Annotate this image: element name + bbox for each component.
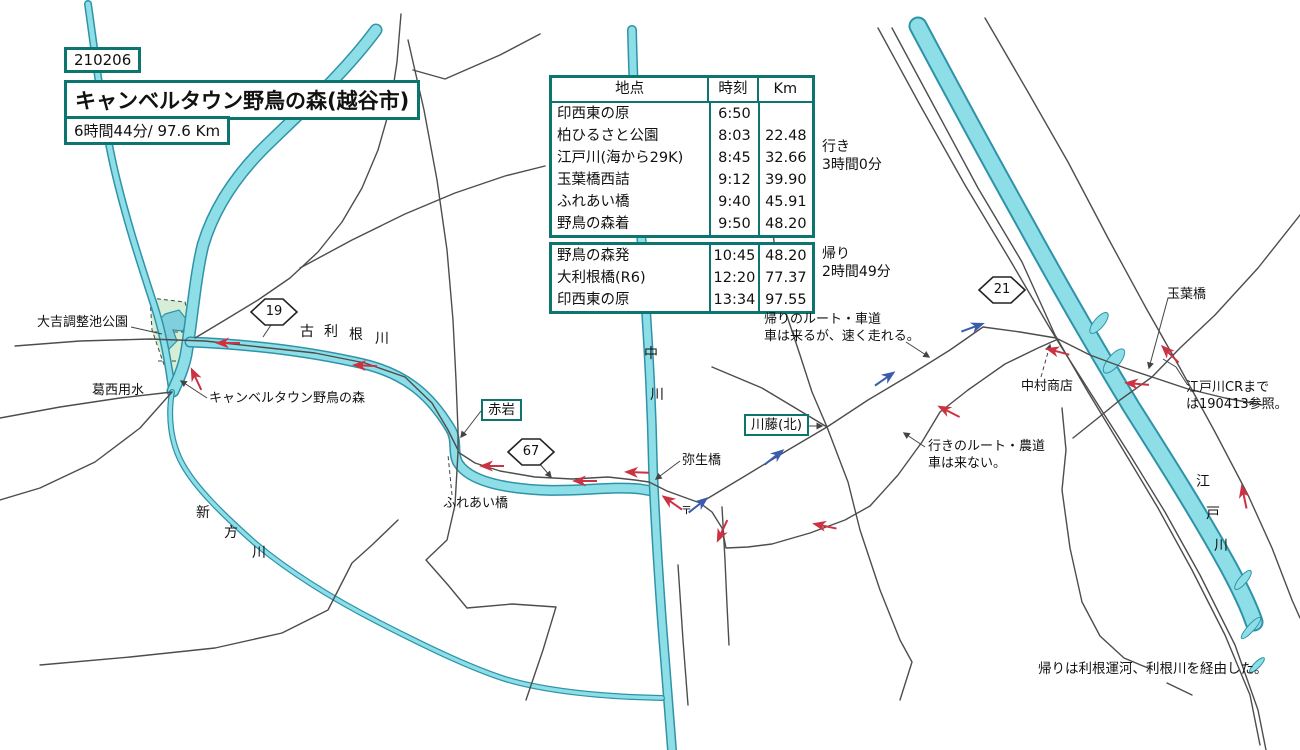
post-office-icon: 〒: [681, 503, 692, 519]
date-code-box: 210206: [64, 47, 141, 73]
return-block: 野鳥の森発 10:45 48.20 大利根橋(R6) 12:20 77.37 印…: [549, 242, 815, 314]
table-row: 野鳥の森着 9:50 48.20: [552, 213, 812, 235]
akaiwa-box-label: 赤岩: [481, 399, 522, 421]
col-time: 時刻: [707, 78, 756, 101]
col-km: Km: [757, 78, 812, 101]
fureai-bridge-label: ふれあい橋: [443, 496, 508, 512]
col-place: 地点: [552, 78, 707, 101]
outbound-duration-note: 行き 3時間0分: [822, 138, 882, 174]
route-21-number: 21: [989, 283, 1015, 297]
edogawa-cr-note: 江戸川CRまで は190413参照。: [1186, 379, 1288, 413]
outbound-block: 地点 時刻 Km 印西東の原 6:50 柏ひるさと公園 8:03 22.48 江…: [549, 75, 815, 238]
ride-log-table: 地点 時刻 Km 印西東の原 6:50 柏ひるさと公園 8:03 22.48 江…: [549, 75, 815, 314]
table-row: 江戸川(海から29K) 8:45 32.66: [552, 147, 812, 169]
kawafuji-kita-box-label: 川藤(北): [744, 414, 809, 436]
campbelltown-forest-label: キャンベルタウン野鳥の森: [209, 391, 365, 407]
table-row: 大利根橋(R6) 12:20 77.37: [552, 267, 812, 289]
table-row: ふれあい橋 9:40 45.91: [552, 191, 812, 213]
table-row: 柏ひるさと公園 8:03 22.48: [552, 125, 812, 147]
tamaba-bridge-label: 玉葉橋: [1167, 287, 1206, 303]
return-duration-note: 帰り 2時間49分: [822, 245, 891, 281]
daikichi-park-label: 大吉調整池公園: [37, 315, 128, 331]
map-title-box: キャンベルタウン野鳥の森(越谷市): [64, 80, 420, 120]
table-header-row: 地点 時刻 Km: [552, 78, 812, 103]
outbound-route-note: 行きのルート・農道 車は来ない。: [928, 438, 1045, 472]
route-67-number: 67: [518, 445, 544, 459]
nakamura-shop-label: 中村商店: [1021, 379, 1073, 395]
total-time-distance-box: 6時間44分/ 97.6 Km: [64, 116, 230, 145]
bottom-route-note: 帰りは利根運河、利根川を経由した。: [1038, 661, 1268, 677]
hand-drawn-cycling-map: 210206 キャンベルタウン野鳥の森(越谷市) 6時間44分/ 97.6 Km…: [0, 0, 1300, 750]
yayoi-bridge-label: 弥生橋: [682, 453, 721, 469]
table-row: 印西東の原 6:50: [552, 103, 812, 125]
kasai-yosui-label: 葛西用水: [92, 383, 144, 399]
return-route-arrows: [685, 318, 986, 517]
table-row: 野鳥の森発 10:45 48.20: [552, 245, 812, 267]
route-19-number: 19: [261, 305, 287, 319]
table-row: 玉葉橋西詰 9:12 39.90: [552, 169, 812, 191]
outbound-route-arrows: [186, 338, 1252, 546]
return-route-note: 帰りのルート・車道 車は来るが、速く走れる。: [764, 311, 920, 345]
table-row: 印西東の原 13:34 97.55: [552, 289, 812, 311]
